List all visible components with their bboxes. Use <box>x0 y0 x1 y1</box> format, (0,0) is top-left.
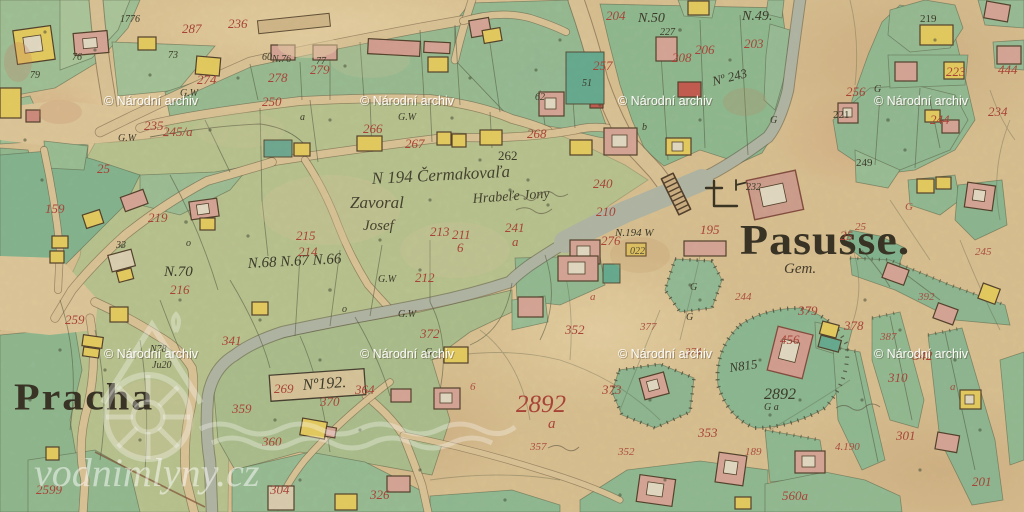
svg-text:© Národní archiv: © Národní archiv <box>874 347 969 361</box>
svg-text:© Národní archiv: © Národní archiv <box>874 94 969 108</box>
svg-text:© Národní archiv: © Národní archiv <box>104 347 199 361</box>
svg-text:© Národní archiv: © Národní archiv <box>360 347 455 361</box>
svg-text:© Národní archiv: © Národní archiv <box>104 94 199 108</box>
svg-text:vodnimlyny.cz: vodnimlyny.cz <box>34 450 260 495</box>
svg-text:© Národní archiv: © Národní archiv <box>618 94 713 108</box>
svg-text:© Národní archiv: © Národní archiv <box>618 347 713 361</box>
svg-text:© Národní archiv: © Národní archiv <box>360 94 455 108</box>
